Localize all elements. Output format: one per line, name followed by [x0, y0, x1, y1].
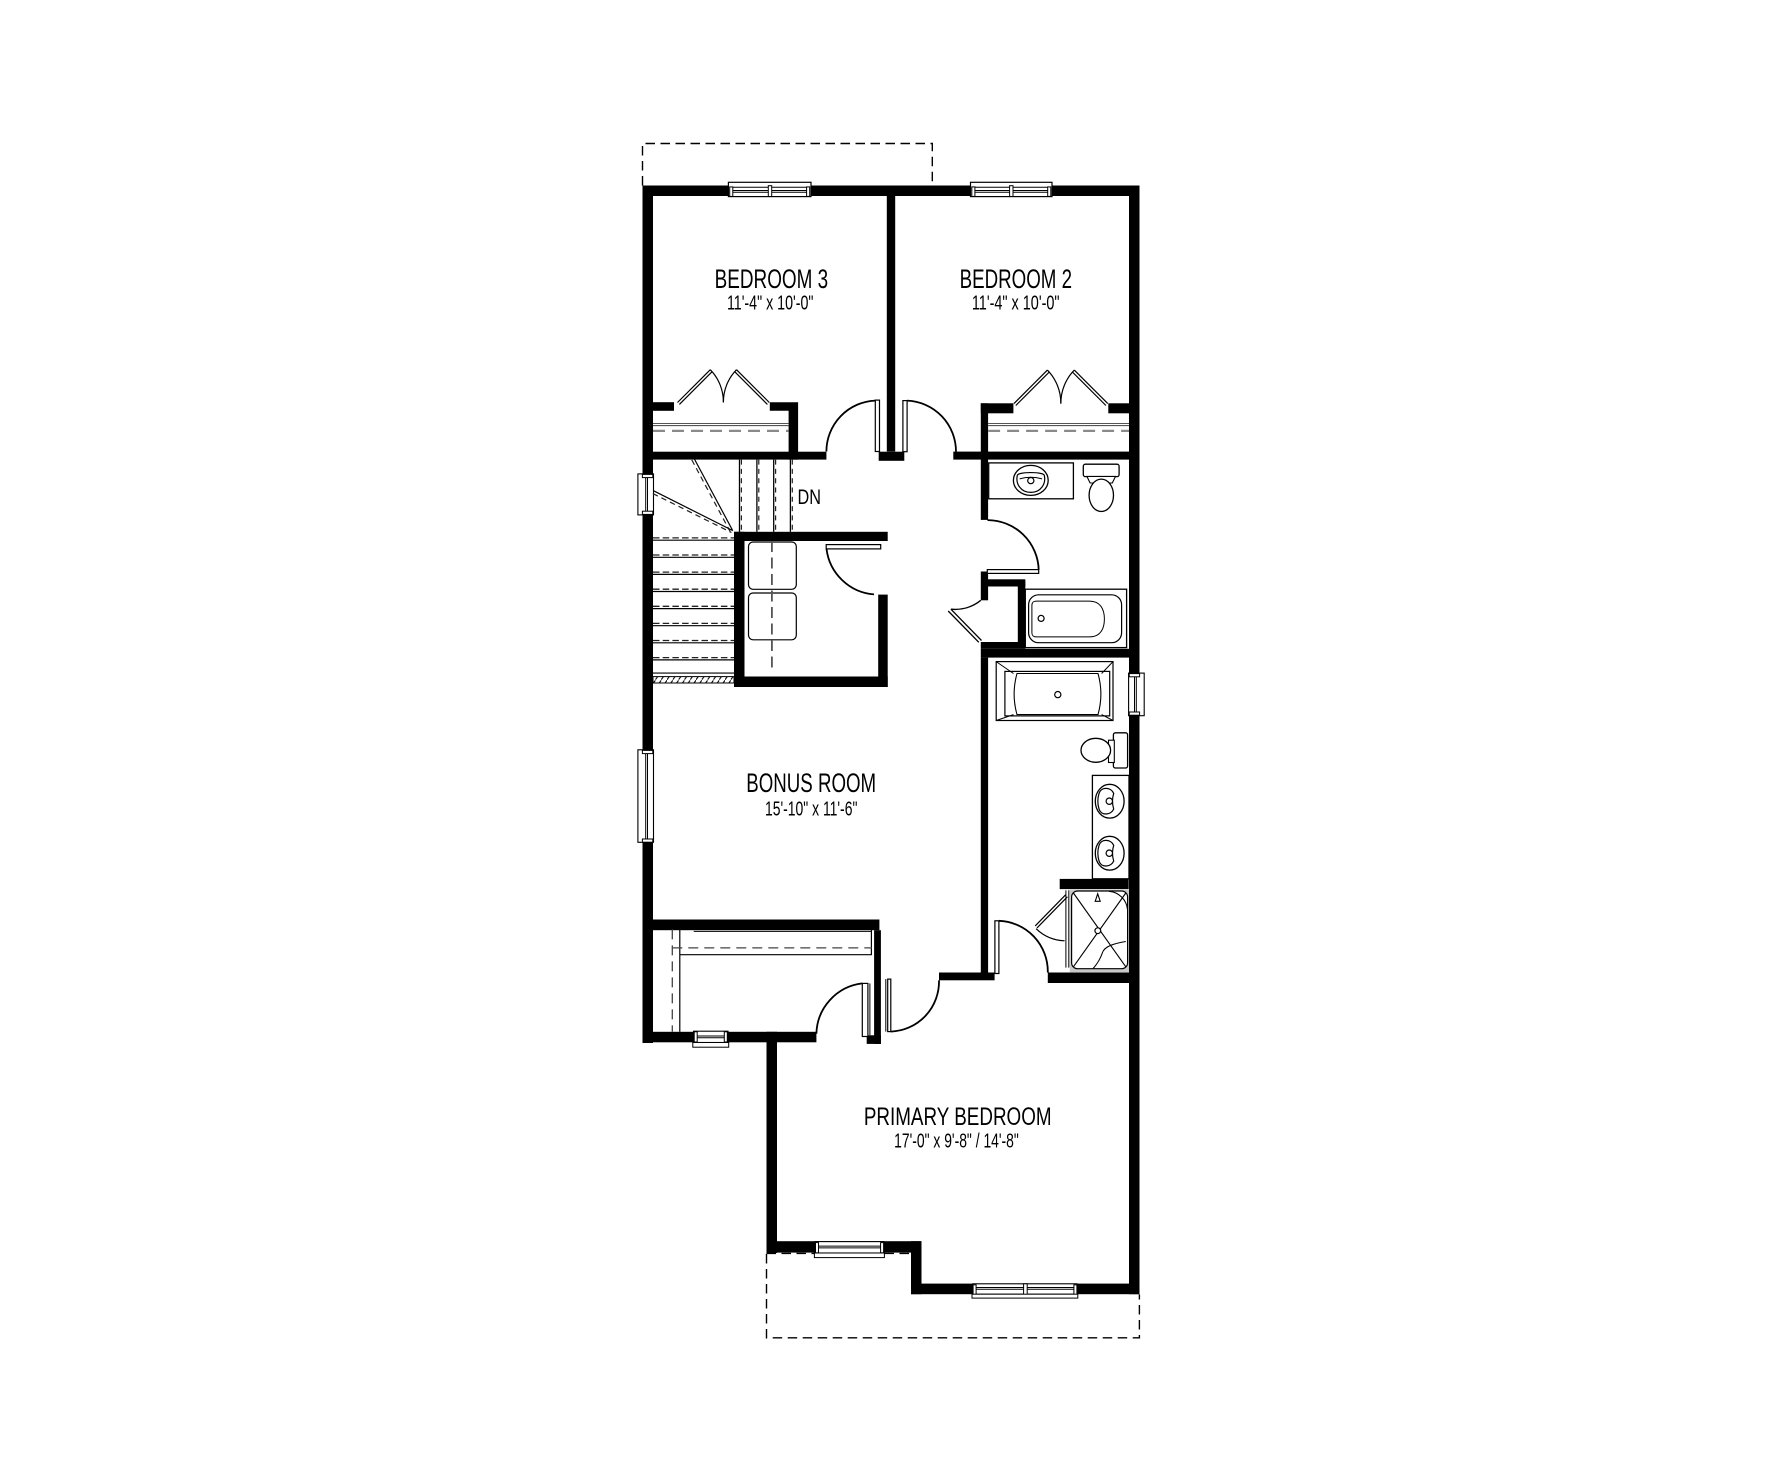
- svg-text:PRIMARY BEDROOM: PRIMARY BEDROOM: [864, 1103, 1052, 1131]
- svg-text:DN: DN: [798, 485, 822, 509]
- svg-text:15'-10" x 11'-6": 15'-10" x 11'-6": [765, 799, 857, 821]
- svg-text:BEDROOM 2: BEDROOM 2: [960, 264, 1072, 294]
- svg-text:11'-4" x 10'-0": 11'-4" x 10'-0": [972, 293, 1060, 315]
- svg-text:BEDROOM 3: BEDROOM 3: [715, 264, 829, 294]
- svg-text:11'-4" x 10'-0": 11'-4" x 10'-0": [727, 293, 814, 315]
- svg-text:BONUS ROOM: BONUS ROOM: [746, 768, 876, 798]
- svg-text:17'-0" x 9'-8" / 14'-8": 17'-0" x 9'-8" / 14'-8": [894, 1130, 1019, 1152]
